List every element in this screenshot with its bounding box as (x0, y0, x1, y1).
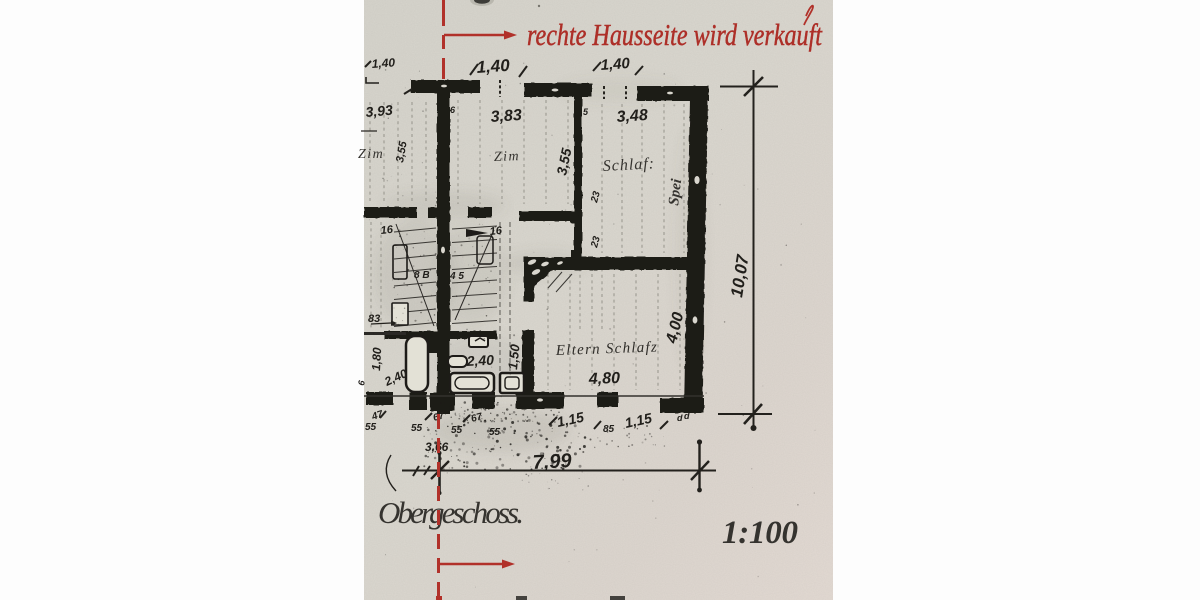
svg-text:3,93: 3,93 (365, 102, 394, 120)
svg-text:d: d (677, 413, 683, 423)
svg-text:Spei: Spei (666, 177, 685, 206)
svg-text:83: 83 (368, 313, 380, 325)
svg-text:Obergeschoss.: Obergeschoss. (378, 495, 524, 530)
svg-text:4 5: 4 5 (449, 271, 464, 282)
svg-text:3,48: 3,48 (616, 107, 648, 126)
svg-text:1,80: 1,80 (369, 347, 384, 371)
svg-text:3,83: 3,83 (490, 107, 522, 126)
svg-text:Schlaf:: Schlaf: (602, 155, 655, 175)
svg-text:2,40: 2,40 (465, 352, 494, 369)
svg-text:1,40: 1,40 (371, 55, 396, 71)
svg-text:rechte Hausseite wird verkauft: rechte Hausseite wird verkauft (527, 17, 823, 52)
svg-text:55: 55 (489, 427, 501, 438)
svg-text:d: d (684, 411, 690, 421)
svg-text:55: 55 (411, 423, 423, 434)
svg-text:1,50: 1,50 (505, 343, 523, 370)
svg-text:85: 85 (603, 424, 615, 435)
svg-text:1,40: 1,40 (600, 55, 631, 74)
svg-text:4,80: 4,80 (588, 370, 621, 388)
svg-text:1:100: 1:100 (722, 515, 798, 551)
svg-text:1,40: 1,40 (476, 56, 511, 77)
svg-text:Zim: Zim (358, 147, 384, 162)
svg-text:16: 16 (380, 224, 394, 237)
svg-text:55: 55 (365, 422, 377, 433)
svg-text:8 B: 8 B (414, 270, 430, 281)
svg-text:Zim: Zim (494, 149, 521, 165)
